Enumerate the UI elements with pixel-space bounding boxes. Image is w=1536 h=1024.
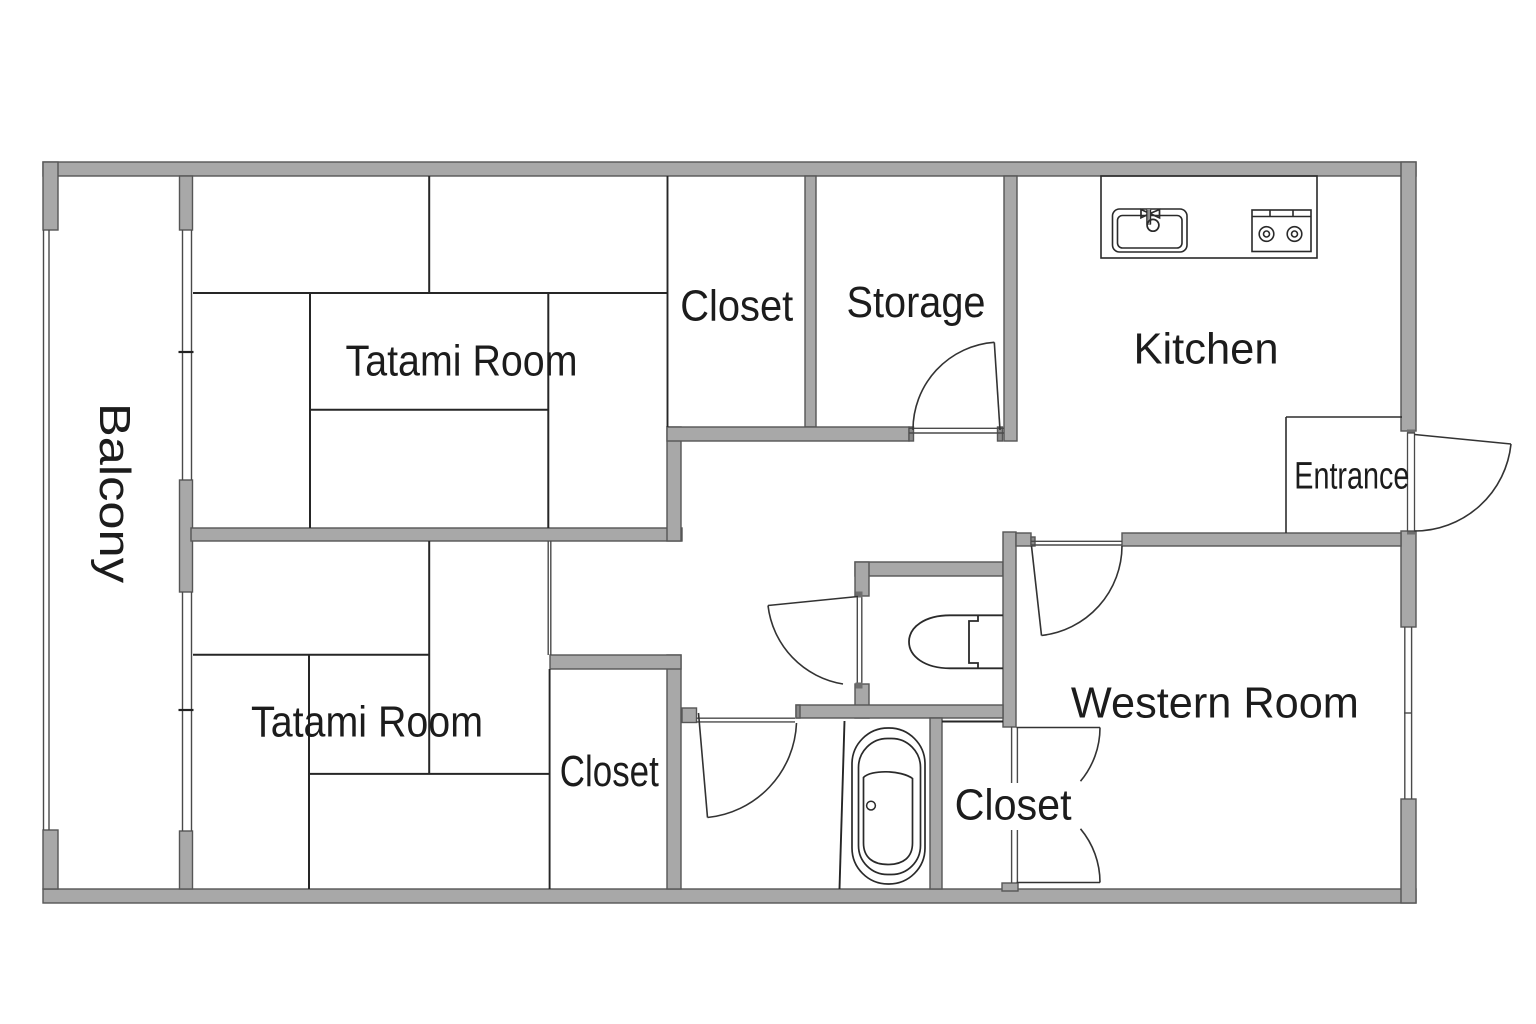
svg-text:Storage: Storage bbox=[847, 278, 986, 327]
svg-text:Kitchen: Kitchen bbox=[1134, 325, 1279, 374]
svg-text:Closet: Closet bbox=[680, 281, 793, 330]
svg-text:Closet: Closet bbox=[560, 747, 659, 796]
svg-text:Entrance: Entrance bbox=[1294, 455, 1409, 497]
svg-text:Balcony: Balcony bbox=[90, 403, 139, 583]
svg-text:Western Room: Western Room bbox=[1071, 679, 1359, 728]
svg-text:Tatami Room: Tatami Room bbox=[251, 697, 483, 746]
svg-text:Tatami Room: Tatami Room bbox=[346, 337, 578, 386]
svg-text:Closet: Closet bbox=[955, 780, 1072, 829]
